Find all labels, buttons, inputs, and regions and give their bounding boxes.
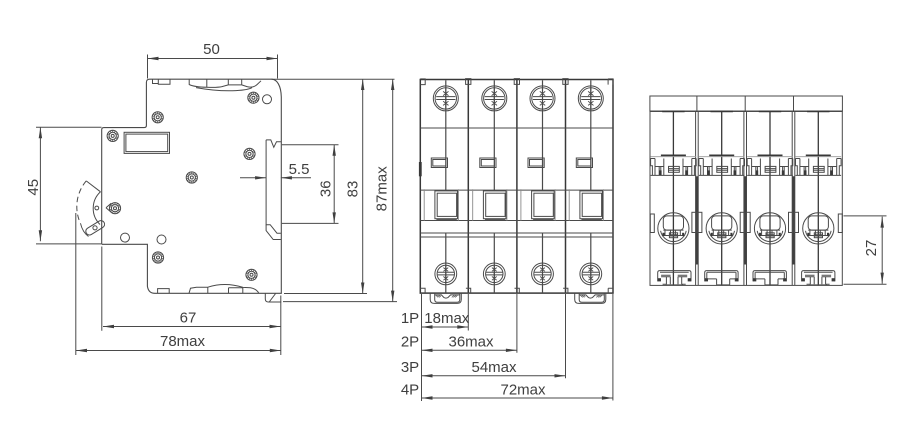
svg-text:36: 36 (318, 180, 335, 197)
svg-text:5.5: 5.5 (289, 161, 310, 178)
svg-text:27: 27 (863, 240, 880, 257)
svg-text:87max: 87max (374, 166, 391, 212)
svg-text:50: 50 (203, 41, 220, 58)
svg-text:83: 83 (344, 181, 361, 198)
svg-text:3P: 3P (401, 359, 419, 376)
svg-text:67: 67 (180, 310, 197, 327)
svg-text:36max: 36max (448, 334, 494, 351)
svg-text:18max: 18max (424, 310, 470, 327)
svg-text:78max: 78max (160, 333, 206, 350)
svg-text:1P: 1P (401, 310, 419, 327)
svg-text:45: 45 (25, 179, 42, 196)
svg-text:2P: 2P (401, 334, 419, 351)
svg-text:4P: 4P (401, 381, 419, 398)
svg-text:72max: 72max (500, 381, 546, 398)
svg-text:54max: 54max (471, 359, 517, 376)
